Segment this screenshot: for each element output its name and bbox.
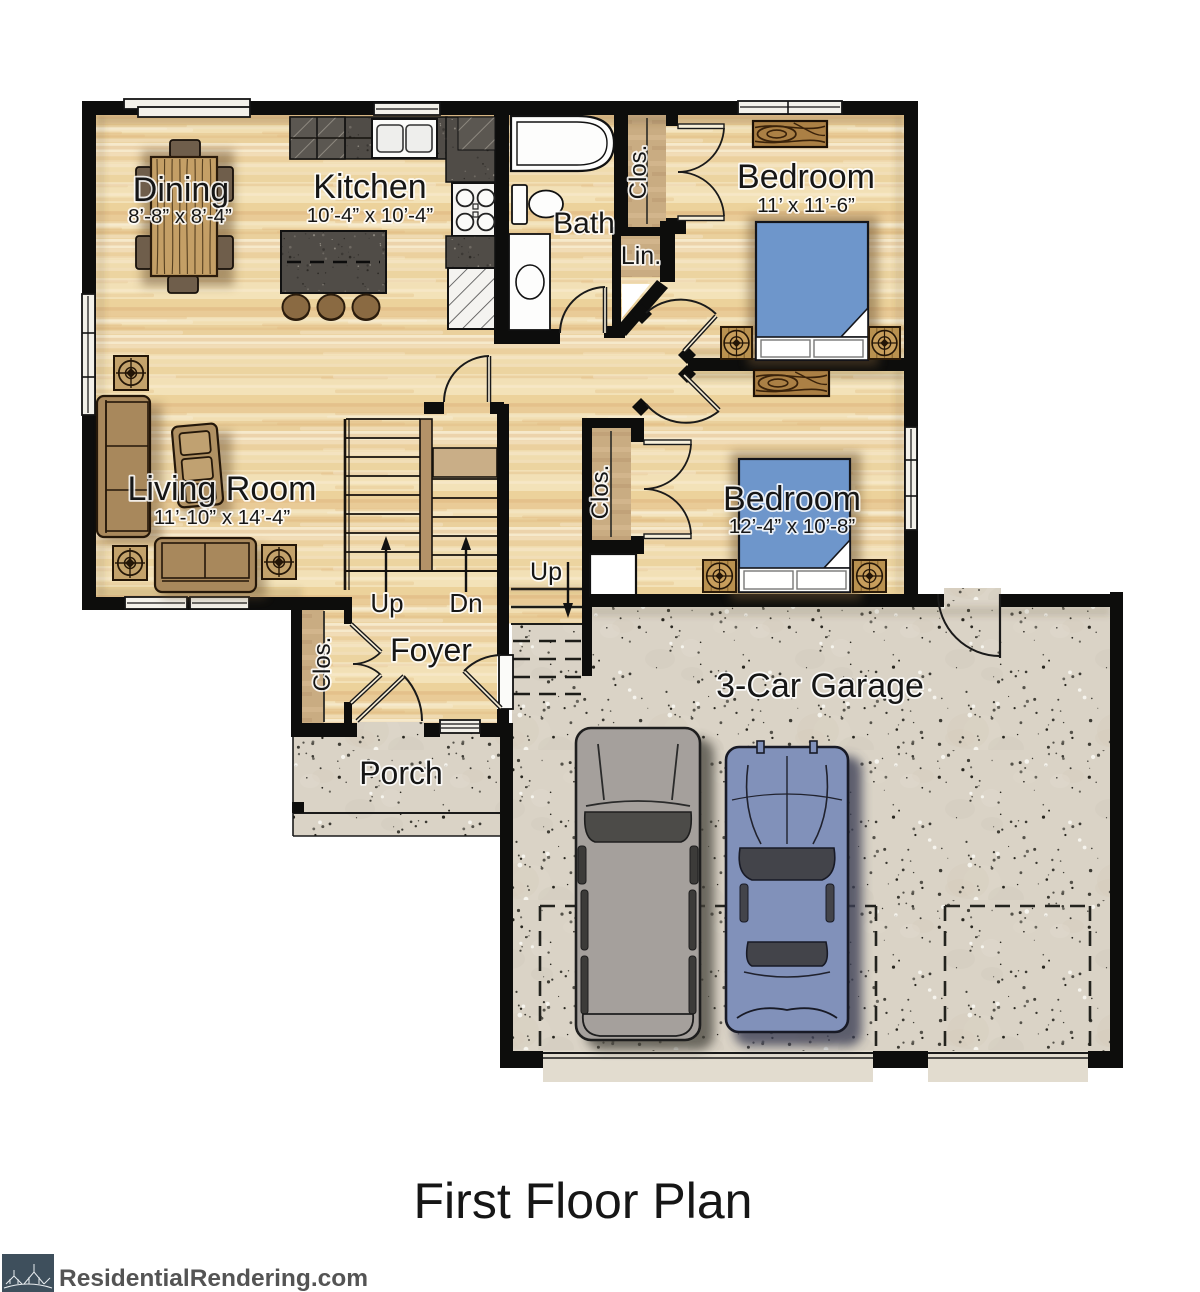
svg-text:Clos.: Clos. [587, 465, 614, 520]
svg-text:Dn: Dn [449, 588, 482, 618]
svg-text:ResidentialRendering.com: ResidentialRendering.com [59, 1265, 368, 1292]
svg-text:Bedroom: Bedroom [737, 158, 875, 196]
svg-text:8’-8” x 8’-4”: 8’-8” x 8’-4” [128, 205, 232, 228]
svg-text:Porch: Porch [359, 755, 443, 791]
svg-text:Lin.: Lin. [621, 242, 661, 270]
svg-text:12’-4” x 10’-8”: 12’-4” x 10’-8” [729, 515, 856, 538]
svg-text:Living Room: Living Room [128, 470, 317, 508]
svg-text:Up: Up [370, 588, 403, 618]
svg-text:Dining: Dining [133, 171, 229, 209]
svg-text:Bedroom: Bedroom [723, 480, 861, 518]
svg-text:Bath: Bath [553, 207, 615, 240]
svg-text:11’ x 11’-6”: 11’ x 11’-6” [757, 194, 855, 217]
svg-text:Clos.: Clos. [309, 637, 336, 692]
svg-text:3-Car Garage: 3-Car Garage [716, 667, 924, 705]
svg-text:Up: Up [530, 558, 562, 586]
svg-text:11’-10” x 14’-4”: 11’-10” x 14’-4” [154, 506, 291, 529]
svg-text:First Floor Plan: First Floor Plan [414, 1173, 753, 1229]
svg-text:Kitchen: Kitchen [313, 168, 426, 206]
svg-text:Clos.: Clos. [625, 145, 652, 200]
svg-text:Foyer: Foyer [390, 632, 472, 668]
svg-text:10’-4” x 10’-4”: 10’-4” x 10’-4” [307, 204, 434, 227]
